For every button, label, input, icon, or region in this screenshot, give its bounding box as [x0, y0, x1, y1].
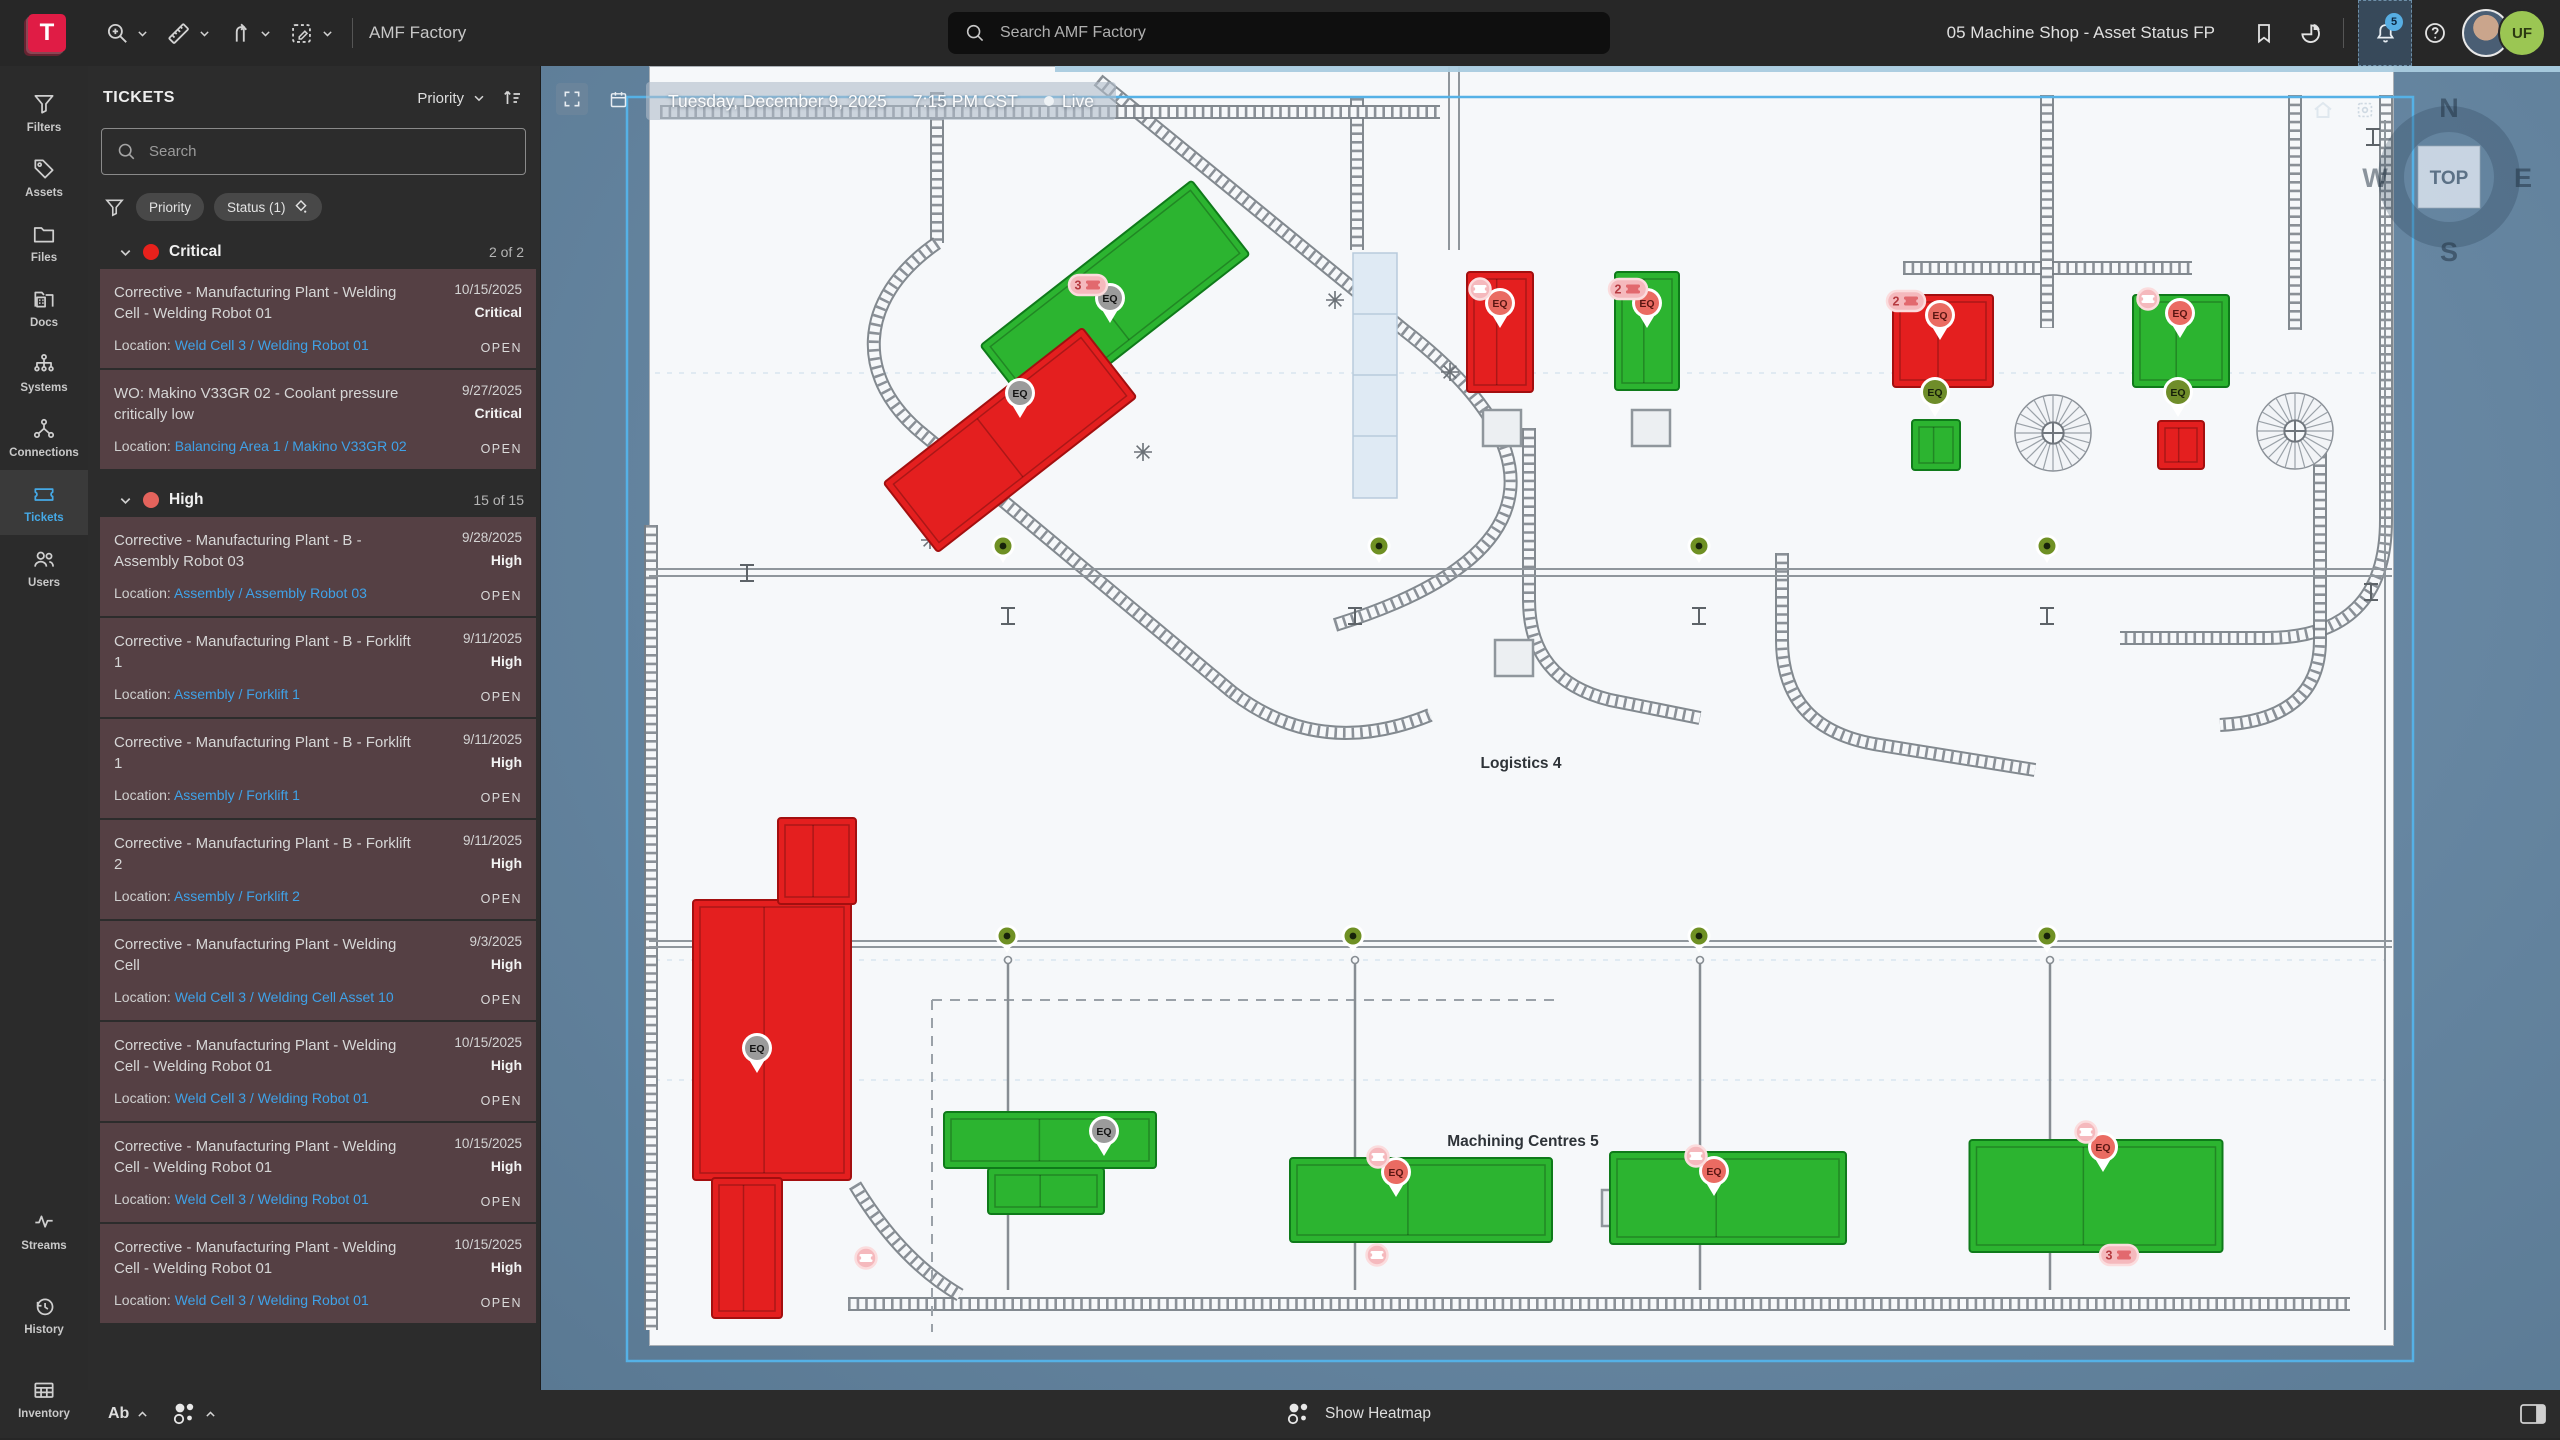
calendar-icon [608, 89, 629, 110]
ticket-count-badge[interactable] [2076, 1122, 2097, 1143]
ticket-title: Corrective - Manufacturing Plant - B - F… [114, 833, 416, 875]
svg-text:2: 2 [1893, 295, 1900, 309]
ticket-priority: High [491, 653, 522, 669]
ticket-priority: High [491, 1259, 522, 1275]
home-icon [2311, 98, 2335, 122]
ticket-location: Location: Weld Cell 3 / Welding Robot 01 [114, 335, 416, 355]
sidebar-item-files[interactable]: Files [0, 210, 88, 275]
chevron-down-icon [259, 27, 272, 40]
sort-by-dropdown[interactable]: Priority [417, 90, 486, 107]
ticket-search-input[interactable] [147, 142, 491, 161]
avatar-group: UF [2462, 9, 2546, 57]
sidebar-item-docs[interactable]: Docs [0, 275, 88, 340]
sidebar-item-label: Systems [20, 382, 67, 394]
ticket-priority: High [491, 754, 522, 770]
chevron-down-icon [136, 27, 149, 40]
section-header-critical[interactable]: Critical2 of 2 [118, 243, 524, 261]
svg-text:EQ: EQ [1096, 1126, 1111, 1138]
sort-by-label: Priority [417, 90, 464, 107]
fullscreen-button[interactable] [556, 83, 588, 115]
sidebar-item-tickets[interactable]: Tickets [0, 470, 88, 535]
machine-red[interactable] [712, 1178, 782, 1318]
svg-text:EQ: EQ [1639, 298, 1654, 310]
edit-selection-tool-button[interactable] [280, 14, 342, 53]
sidebar-item-label: Inventory [18, 1408, 70, 1420]
ticket-date: 10/15/2025 [454, 1035, 522, 1050]
zone-label: Machining Centres 5 [1447, 1133, 1599, 1150]
status-dot-pin[interactable] [2036, 535, 2059, 564]
ticket-status: OPEN [481, 1094, 522, 1108]
ticket-title: Corrective - Manufacturing Plant - Weldi… [114, 1237, 416, 1279]
zoom-icon [104, 20, 130, 46]
filter-chip-status-1-[interactable]: Status (1) [214, 193, 322, 221]
sidebar-item-label: Streams [21, 1240, 66, 1252]
panel-layout-icon [2518, 1401, 2548, 1427]
status-dot-pin[interactable] [992, 535, 1015, 564]
chevron-up-icon [136, 1408, 149, 1421]
ticket-date: 9/11/2025 [463, 833, 522, 848]
ticket-priority: High [491, 956, 522, 972]
ticket-location: Location: Assembly / Assembly Robot 03 [114, 583, 416, 603]
ticket-status: OPEN [481, 791, 522, 805]
live-indicator[interactable]: Live [1044, 91, 1094, 112]
topbar-divider [2343, 18, 2344, 48]
ticket-status: OPEN [481, 1296, 522, 1310]
machine-red[interactable] [693, 900, 851, 1180]
ticket-date: 10/15/2025 [454, 282, 522, 297]
ticket-priority: High [491, 1158, 522, 1174]
search-icon [116, 141, 137, 162]
fill-status-icon [293, 199, 309, 215]
svg-text:EQ: EQ [1706, 1166, 1721, 1178]
chevron-down-icon [321, 27, 334, 40]
funnel-icon [31, 91, 57, 117]
chevron-up-icon [204, 1408, 217, 1421]
ticket-date: 10/15/2025 [454, 1237, 522, 1252]
svg-text:EQ: EQ [1932, 310, 1947, 322]
ticket-date: 9/27/2025 [462, 383, 522, 398]
svg-text:EQ: EQ [1012, 388, 1027, 400]
label-style-label: Ab [108, 1405, 129, 1423]
ticket-date: 10/15/2025 [454, 1136, 522, 1151]
sidebar-item-label: History [24, 1324, 64, 1336]
ticket-location: Location: Weld Cell 3 / Welding Cell Ass… [114, 987, 416, 1007]
sort-direction-button[interactable] [500, 86, 524, 110]
ticket-count-badge[interactable] [1368, 1147, 1389, 1168]
ticket-location: Location: Balancing Area 1 / Makino V33G… [114, 436, 416, 456]
location-link[interactable]: Assembly / Forklift 1 [174, 686, 300, 702]
route-tool-button[interactable] [219, 14, 280, 52]
sidebar-item-label: Assets [25, 187, 63, 199]
bookmark-button[interactable] [2241, 0, 2287, 66]
users-icon [31, 546, 57, 572]
ticket-card[interactable]: Corrective - Manufacturing Plant - Weldi… [100, 1022, 536, 1121]
route-icon [227, 20, 253, 46]
ticket-status: OPEN [481, 341, 522, 355]
ticket-priority: Critical [475, 304, 522, 320]
status-dot-pin[interactable] [1688, 535, 1711, 564]
section-count: 15 of 15 [473, 492, 524, 508]
chevron-down-icon [472, 91, 486, 105]
status-dot-pin[interactable] [1342, 925, 1365, 954]
bottom-bar: Ab Show Heatmap [88, 1390, 2560, 1438]
ticket-location: Location: Assembly / Forklift 1 [114, 785, 416, 805]
section-name: Critical [169, 243, 222, 261]
floor-plan-drawing: Logistics 4Machining Centres 5EQEQEQEQEQ… [541, 66, 2560, 1390]
top-bar: T AMF Factory 05 Machine Shop - Asset St… [0, 0, 2560, 66]
location-link[interactable]: Assembly / Assembly Robot 03 [174, 585, 367, 601]
map-area[interactable]: Logistics 4Machining Centres 5EQEQEQEQEQ… [541, 66, 2560, 1390]
sidebar-item-label: Filters [27, 122, 62, 134]
ticket-title: Corrective - Manufacturing Plant - Weldi… [114, 934, 416, 976]
chevron-down-icon [198, 27, 211, 40]
bookmark-icon [2252, 21, 2276, 45]
panel-toggle-button[interactable] [2518, 1390, 2548, 1438]
time-banner: Tuesday, December 9, 2025 7:15 PM CST Li… [646, 82, 1116, 120]
section-header-high[interactable]: High15 of 15 [118, 491, 524, 509]
section-name: High [169, 491, 203, 509]
tag-icon [31, 156, 57, 182]
svg-text:EQ: EQ [1927, 387, 1942, 399]
notification-badge: 5 [2385, 13, 2403, 31]
reports-button[interactable] [2287, 0, 2333, 66]
history-icon [31, 1293, 57, 1319]
ticket-count-badge[interactable]: 3 [1069, 275, 1107, 295]
ticket-location: Location: Weld Cell 3 / Welding Robot 01 [114, 1189, 416, 1209]
banner-date: Tuesday, December 9, 2025 [668, 91, 887, 112]
ticket-count-badge[interactable]: 3 [2100, 1245, 2138, 1265]
ticket-title: Corrective - Manufacturing Plant - B - F… [114, 732, 416, 774]
home-view-button[interactable] [2307, 94, 2339, 126]
tickets-panel: TICKETS Priority PriorityStatus (1) Crit… [88, 66, 541, 1390]
sidebar-item-label: Users [28, 577, 60, 589]
calendar-button[interactable] [602, 83, 634, 115]
ticket-title: WO: Makino V33GR 02 - Coolant pressure c… [114, 383, 416, 425]
compass-east: E [2514, 163, 2532, 193]
location-link[interactable]: Weld Cell 3 / Welding Cell Asset 10 [175, 989, 394, 1005]
status-dot-pin[interactable] [1368, 535, 1391, 564]
ticket-card[interactable]: Corrective - Manufacturing Plant - B - A… [100, 517, 536, 616]
svg-text:EQ: EQ [749, 1043, 764, 1055]
ticket-priority: High [491, 552, 522, 568]
machine-red[interactable] [778, 818, 856, 904]
icon-sidebar: FiltersAssetsFilesDocsSystemsConnections… [0, 66, 88, 1438]
ticket-count-badge[interactable] [856, 1248, 877, 1269]
ticket-count-badge[interactable] [2138, 289, 2159, 310]
ticket-title: Corrective - Manufacturing Plant - Weldi… [114, 1035, 416, 1077]
location-link[interactable]: Balancing Area 1 / Makino V33GR 02 [175, 438, 407, 454]
funnel-icon[interactable] [103, 196, 126, 219]
live-dot-icon [1044, 96, 1054, 106]
location-link[interactable]: Weld Cell 3 / Welding Robot 01 [175, 1191, 369, 1207]
dots-cluster-icon [171, 1401, 197, 1427]
ticket-count-badge[interactable]: 2 [1609, 279, 1647, 299]
ticket-count-badge[interactable]: 2 [1887, 291, 1925, 311]
edit-selection-icon [288, 20, 315, 47]
sidebar-item-connections[interactable]: Connections [0, 405, 88, 470]
sidebar-item-label: Docs [30, 317, 58, 329]
ticket-date: 9/11/2025 [463, 732, 522, 747]
status-dot-pin[interactable] [1688, 925, 1711, 954]
priority-dot [143, 492, 159, 508]
compass-west: W [2362, 163, 2388, 193]
svg-text:EQ: EQ [1492, 298, 1507, 310]
ticket-card[interactable]: WO: Makino V33GR 02 - Coolant pressure c… [100, 370, 536, 469]
ticket-card[interactable]: Corrective - Manufacturing Plant - B - F… [100, 820, 536, 919]
sidebar-item-filters[interactable]: Filters [0, 80, 88, 145]
label-style-toggle[interactable]: Ab [108, 1405, 149, 1423]
machine-red[interactable] [2158, 421, 2204, 469]
ticket-card[interactable]: Corrective - Manufacturing Plant - Weldi… [100, 921, 536, 1020]
toolbar: AMF Factory [96, 14, 466, 53]
global-search-input[interactable] [998, 23, 1542, 43]
sidebar-item-history[interactable]: History [0, 1272, 88, 1356]
ticket-status: OPEN [481, 1195, 522, 1209]
ticket-date: 9/11/2025 [463, 631, 522, 646]
ticket-card[interactable]: Corrective - Manufacturing Plant - Weldi… [100, 1123, 536, 1222]
view-title: 05 Machine Shop - Asset Status FP [1947, 23, 2215, 43]
ticket-count-badge[interactable] [1686, 1146, 1707, 1167]
zoom-tool-button[interactable] [96, 14, 157, 52]
docs-icon [31, 286, 57, 312]
sidebar-item-assets[interactable]: Assets [0, 145, 88, 210]
ticket-date: 9/3/2025 [469, 934, 522, 949]
ticket-count-badge[interactable] [1470, 279, 1491, 300]
notifications-button[interactable]: 5 [2358, 0, 2412, 66]
location-link[interactable]: Weld Cell 3 / Welding Robot 01 [175, 1090, 369, 1106]
machine-green[interactable] [1912, 420, 1960, 470]
status-dot-pin[interactable] [2036, 925, 2059, 954]
ticket-count-badge[interactable] [1367, 1245, 1388, 1266]
tandem-logo-icon[interactable]: T [28, 14, 66, 52]
svg-text:EQ: EQ [2095, 1142, 2110, 1154]
panel-title: TICKETS [103, 89, 175, 107]
connections-icon [31, 416, 57, 442]
ticket-title: Corrective - Manufacturing Plant - Weldi… [114, 1136, 416, 1178]
pulse-icon [31, 1209, 57, 1235]
search-icon [964, 22, 986, 44]
global-search[interactable] [948, 12, 1610, 54]
compass-north: N [2439, 93, 2459, 123]
ticket-location: Location: Weld Cell 3 / Welding Robot 01 [114, 1088, 416, 1108]
svg-text:3: 3 [1075, 279, 1082, 293]
ticket-title: Corrective - Manufacturing Plant - B - F… [114, 631, 416, 673]
show-heatmap-toggle[interactable]: Show Heatmap [1285, 1390, 1431, 1438]
section-count: 2 of 2 [489, 244, 524, 260]
view-cube-compass[interactable]: N E S W TOP [2356, 84, 2542, 270]
ticket-status: OPEN [481, 589, 522, 603]
priority-dot [143, 244, 159, 260]
help-icon [2422, 20, 2448, 46]
ticket-card[interactable]: Corrective - Manufacturing Plant - Weldi… [100, 269, 536, 368]
grid-icon [31, 1377, 57, 1403]
svg-text:2: 2 [1615, 283, 1622, 297]
help-button[interactable] [2412, 0, 2458, 66]
compass-south: S [2440, 237, 2458, 267]
svg-text:EQ: EQ [2172, 308, 2187, 320]
location-link[interactable]: Weld Cell 3 / Welding Robot 01 [175, 337, 369, 353]
account-avatar[interactable]: UF [2498, 9, 2546, 57]
chevron-down-icon [118, 493, 133, 508]
sidebar-item-label: Files [31, 252, 57, 264]
map-scrollbar[interactable] [1055, 66, 2560, 72]
ticket-priority: Critical [475, 405, 522, 421]
chevron-down-icon [118, 245, 133, 260]
ticket-location: Location: Weld Cell 3 / Welding Robot 01 [114, 1290, 416, 1310]
ticket-title: Corrective - Manufacturing Plant - B - A… [114, 530, 416, 572]
compass-top-face: TOP [2430, 168, 2469, 189]
ticket-priority: High [491, 855, 522, 871]
svg-text:EQ: EQ [1388, 1167, 1403, 1179]
ticket-status: OPEN [481, 892, 522, 906]
ticket-date: 9/28/2025 [462, 530, 522, 545]
ticket-icon [31, 481, 57, 507]
filter-row: PriorityStatus (1) [103, 193, 526, 221]
banner-time: 7:15 PM CST [913, 91, 1018, 112]
show-heatmap-label: Show Heatmap [1325, 1405, 1431, 1423]
eq-pin-olive[interactable]: EQ [1920, 377, 1950, 417]
pie-chart-icon [2298, 21, 2323, 46]
sidebar-item-streams[interactable]: Streams [0, 1188, 88, 1272]
ticket-priority: High [491, 1057, 522, 1073]
sidebar-item-users[interactable]: Users [0, 535, 88, 600]
ticket-title: Corrective - Manufacturing Plant - Weldi… [114, 282, 416, 324]
ticket-status: OPEN [481, 442, 522, 456]
machine-green[interactable] [944, 1112, 1156, 1168]
ticket-card[interactable]: Corrective - Manufacturing Plant - B - F… [100, 719, 536, 818]
eq-pin-olive[interactable]: EQ [2163, 377, 2193, 417]
machine-green[interactable] [1290, 1158, 1552, 1242]
ticket-status: OPEN [481, 993, 522, 1007]
measure-tool-button[interactable] [157, 14, 219, 53]
fullscreen-icon [562, 89, 582, 109]
app-name: AMF Factory [369, 23, 466, 43]
status-dot-pin[interactable] [996, 925, 1019, 954]
sidebar-item-inventory[interactable]: Inventory [0, 1356, 88, 1440]
svg-text:3: 3 [2106, 1249, 2113, 1263]
heatmap-dots-icon [1285, 1401, 1311, 1427]
ticket-card[interactable]: Corrective - Manufacturing Plant - B - F… [100, 618, 536, 717]
systems-icon [31, 351, 57, 377]
ticket-search[interactable] [101, 128, 526, 175]
ticket-location: Location: Assembly / Forklift 1 [114, 684, 416, 704]
sidebar-item-systems[interactable]: Systems [0, 340, 88, 405]
sidebar-item-label: Connections [9, 447, 79, 459]
location-link[interactable]: Assembly / Forklift 2 [174, 888, 300, 904]
sidebar-item-label: Tickets [24, 512, 63, 524]
topbar-right: 05 Machine Shop - Asset Status FP 5 UF [1947, 0, 2560, 66]
ticket-card[interactable]: Corrective - Manufacturing Plant - Weldi… [100, 1224, 536, 1323]
svg-text:EQ: EQ [1102, 293, 1117, 305]
marker-cluster-toggle[interactable] [171, 1401, 217, 1427]
ticket-location: Location: Assembly / Forklift 2 [114, 886, 416, 906]
machine-green[interactable] [988, 1168, 1104, 1214]
folder-icon [31, 221, 57, 247]
location-link[interactable]: Assembly / Forklift 1 [174, 787, 300, 803]
location-link[interactable]: Weld Cell 3 / Welding Robot 01 [175, 1292, 369, 1308]
toolbar-divider [352, 18, 353, 48]
svg-text:EQ: EQ [2170, 387, 2185, 399]
zone-label: Logistics 4 [1481, 755, 1562, 772]
ticket-status: OPEN [481, 690, 522, 704]
filter-chip-priority[interactable]: Priority [136, 193, 204, 221]
ruler-icon [165, 20, 192, 47]
